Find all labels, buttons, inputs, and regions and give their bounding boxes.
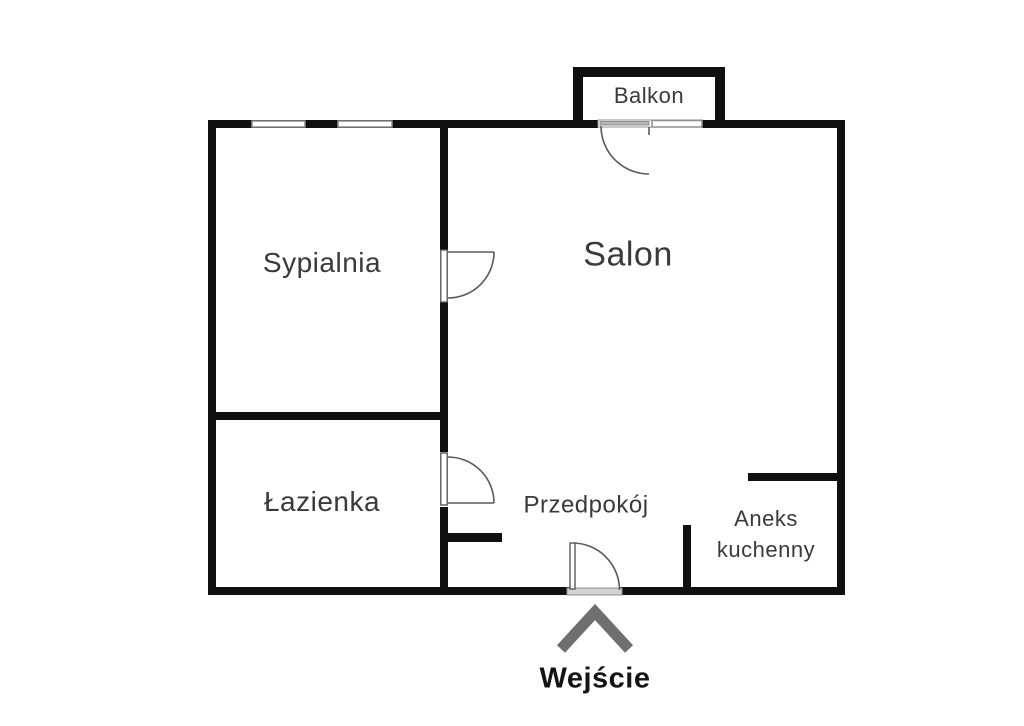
balcony-wall-right (715, 67, 725, 120)
interior-wall-vertical-lower (440, 507, 448, 587)
balcony-wall-left (573, 67, 583, 120)
entrance-door (567, 543, 622, 595)
room-label-salon: Salon (583, 235, 672, 276)
floorplan-canvas: Sypialnia Salon Łazienka Przedpokój Anek… (0, 0, 1024, 726)
aneks-label-line1: Aneks (734, 506, 798, 531)
bathroom-door (441, 453, 494, 505)
entrance-arrow-icon (561, 612, 629, 649)
aneks-label-line2: kuchenny (717, 537, 815, 562)
room-label-aneks-kuchenny: Aneks kuchenny (717, 504, 815, 566)
outer-wall-left (208, 120, 216, 595)
balcony-wall-top (573, 67, 725, 77)
bedroom-door-arc (448, 252, 494, 298)
kitchenette-stub-wall-vertical (683, 525, 691, 595)
interior-wall-vertical-upper (440, 128, 448, 250)
outer-wall-bottom-left (208, 587, 570, 595)
interior-wall-horizontal (208, 412, 448, 420)
entrance-door-arc (573, 543, 620, 590)
bathroom-door-leaf (441, 453, 447, 505)
bathroom-door-arc (448, 457, 494, 503)
outer-wall-right (837, 120, 845, 595)
kitchenette-stub-wall-horizontal (748, 473, 845, 481)
room-label-przedpokoj: Przedpokój (523, 492, 648, 521)
outer-wall-bottom-right (620, 587, 845, 595)
room-label-lazienka: Łazienka (264, 485, 380, 519)
bedroom-door (441, 250, 494, 302)
bedroom-window-2 (338, 121, 392, 127)
room-label-balkon: Balkon (614, 83, 684, 109)
hallway-stub-wall (444, 533, 502, 542)
entrance-door-leaf (570, 543, 575, 589)
balcony-door-leaf (600, 122, 649, 126)
balcony-door-arc (601, 126, 649, 174)
floorplan-drawing (0, 0, 1024, 726)
balcony-door-assembly (598, 120, 702, 174)
balcony-window (652, 121, 702, 128)
entrance-label: Wejście (540, 662, 651, 697)
bedroom-door-leaf (441, 250, 447, 302)
bedroom-window-1 (252, 121, 305, 127)
interior-wall-vertical-middle (440, 302, 448, 452)
outer-wall-top-right (702, 120, 845, 128)
room-label-sypialnia: Sypialnia (263, 246, 381, 280)
